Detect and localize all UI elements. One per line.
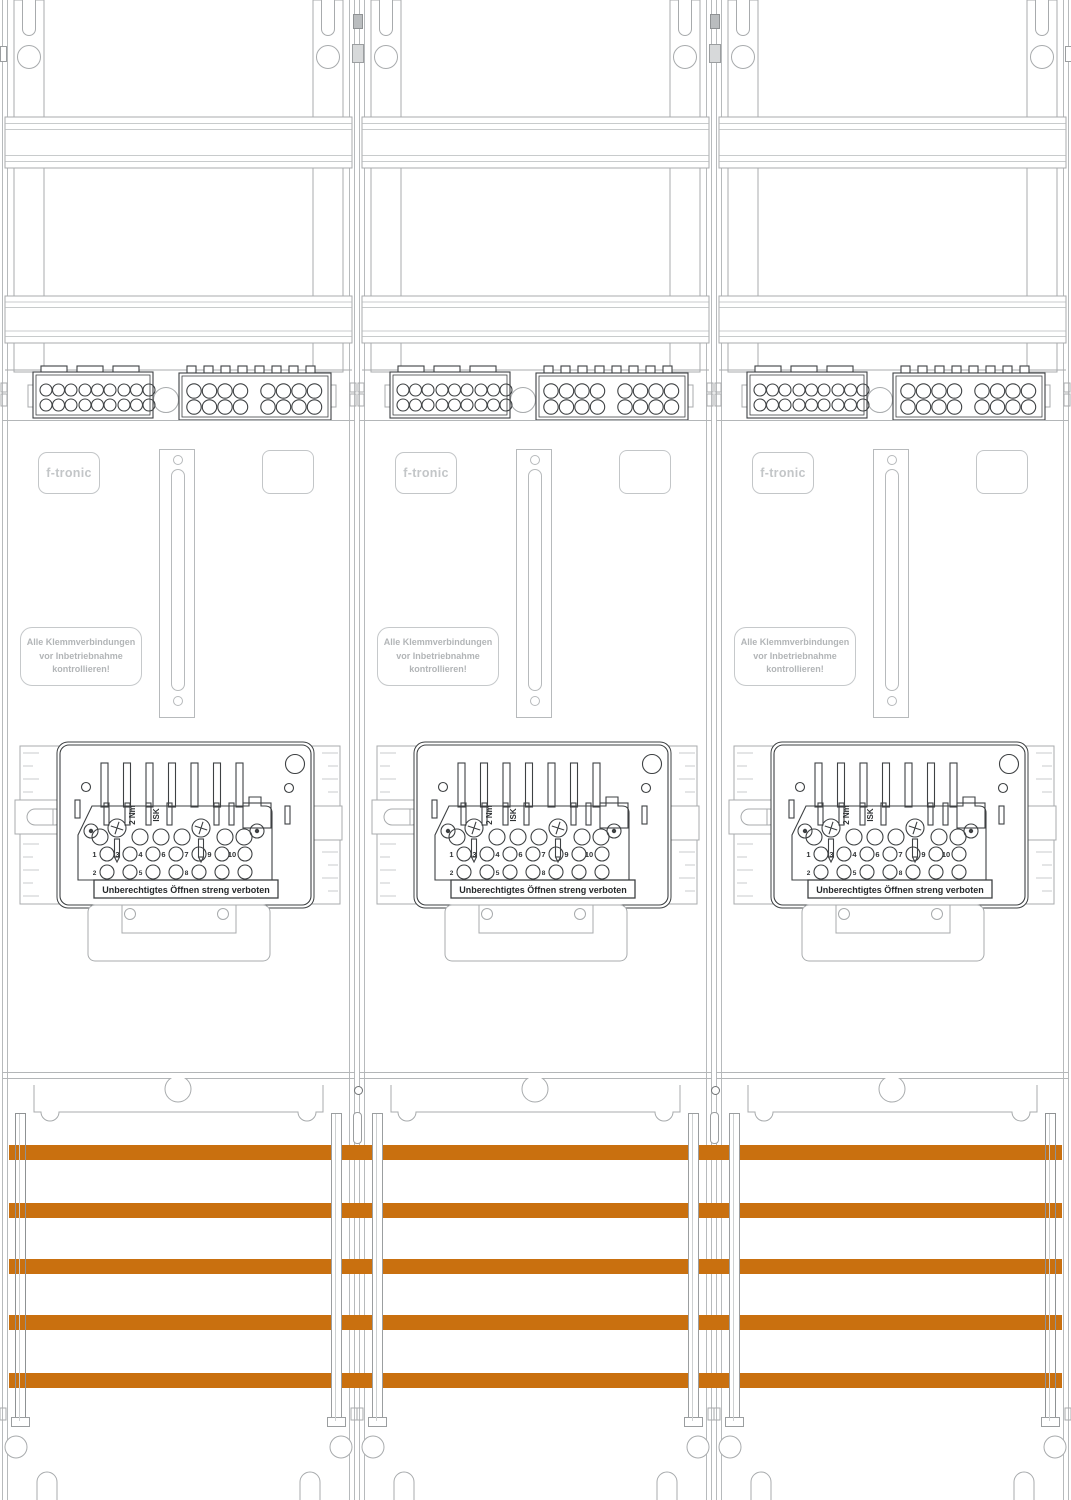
bottom-center-hole-icon: [522, 1078, 548, 1102]
slot-bar: [528, 469, 542, 691]
svg-text:9: 9: [564, 850, 568, 859]
divider-clip-icon: [352, 44, 364, 63]
svg-text:10: 10: [228, 850, 236, 859]
panel-body-top-line: [2, 420, 355, 421]
rail-foot: [725, 1417, 744, 1427]
adjustment-slot: [516, 449, 552, 718]
brand-text: f-tronic: [403, 466, 448, 480]
warning-label: Alle Klemmverbindungen vor Inbetriebnahm…: [377, 627, 499, 686]
svg-text:1: 1: [806, 850, 810, 859]
adjustment-slot: [873, 449, 909, 718]
isk-label: ISK: [866, 808, 875, 822]
hanger-slot-icon: [679, 0, 692, 36]
mounting-hole-icon: [674, 46, 697, 69]
divider-screw-icon: [354, 1086, 363, 1095]
top-mounting-section: [357, 0, 714, 420]
din-rail-lower: [362, 296, 709, 343]
foot-hole-icon: [1044, 1436, 1066, 1458]
slot-bar: [171, 469, 185, 691]
svg-text:7: 7: [184, 850, 188, 859]
edge-clip-icon: [0, 46, 7, 62]
blank-plate: [976, 450, 1028, 494]
svg-text:2: 2: [807, 870, 811, 877]
panel-body-top-line: [359, 420, 712, 421]
mounting-hole-icon: [317, 46, 340, 69]
isk-label: ISK: [509, 808, 518, 822]
busbar-section: [0, 1078, 357, 1500]
din-rail-upper: [362, 117, 709, 168]
divider-slot-icon: [710, 1112, 719, 1144]
svg-text:2: 2: [93, 870, 97, 877]
brand-text: f-tronic: [760, 466, 805, 480]
warning-line: Alle Klemmverbindungen: [21, 636, 141, 650]
busbar-support-rail: [729, 1113, 740, 1422]
device-body: [414, 742, 671, 908]
busbar-support-rail: [1045, 1113, 1056, 1422]
divider-clip-icon: [353, 14, 363, 29]
center-screw-hole-icon: [868, 388, 893, 413]
warning-line: vor Inbetriebnahme: [735, 650, 855, 664]
svg-text:3: 3: [472, 850, 476, 859]
foot-hole-icon: [362, 1436, 384, 1458]
rail-foot: [684, 1417, 703, 1427]
warning-banner-text: Unberechtigtes Öffnen streng verboten: [816, 885, 984, 895]
meter-cabinet-drawing: f-tronic Alle Klemmverbindungen vor Inbe…: [0, 0, 1071, 1500]
warning-banner-text: Unberechtigtes Öffnen streng verboten: [102, 885, 270, 895]
busbar: [9, 1373, 1062, 1388]
isk-label: ISK: [152, 808, 161, 822]
isk-terminal-device: 1 2 3 7 8 9: [714, 733, 1071, 965]
meter-panel: f-tronic Alle Klemmverbindungen vor Inbe…: [357, 0, 714, 1500]
slot-hole-icon: [530, 455, 540, 465]
svg-text:1: 1: [92, 850, 96, 859]
device-body: [57, 742, 314, 908]
adjustment-slot: [159, 449, 195, 718]
warning-banner-text: Unberechtigtes Öffnen streng verboten: [459, 885, 627, 895]
busbar-section: [714, 1078, 1071, 1500]
warning-line: Alle Klemmverbindungen: [378, 636, 498, 650]
center-screw-hole-icon: [511, 388, 536, 413]
foot-notch: [37, 1472, 57, 1500]
busbar: [9, 1145, 1062, 1160]
foot-hole-icon: [687, 1436, 709, 1458]
din-rail-lower: [719, 296, 1066, 343]
terminal-block-left: [747, 366, 869, 418]
warning-line: Alle Klemmverbindungen: [735, 636, 855, 650]
device-body: [771, 742, 1028, 908]
busbar-support-rail: [372, 1113, 383, 1422]
rail-foot: [327, 1417, 346, 1427]
svg-text:8: 8: [185, 870, 189, 877]
warning-line: kontrollieren!: [735, 663, 855, 677]
divider-slot-icon: [353, 1112, 362, 1144]
divider-clip-icon: [710, 14, 720, 29]
foot-notch: [1014, 1472, 1034, 1500]
torque-label: 2 Nm: [842, 805, 851, 825]
hanger-slot-icon: [1036, 0, 1049, 36]
mounting-hole-icon: [732, 46, 755, 69]
svg-text:7: 7: [898, 850, 902, 859]
busbar: [9, 1203, 1062, 1218]
mounting-hole-icon: [375, 46, 398, 69]
svg-text:10: 10: [942, 850, 950, 859]
warning-label: Alle Klemmverbindungen vor Inbetriebnahm…: [734, 627, 856, 686]
brand-label: f-tronic: [395, 452, 457, 494]
meter-panel: f-tronic Alle Klemmverbindungen vor Inbe…: [0, 0, 357, 1500]
isk-terminal-device: 1 2 3 7 8 9: [0, 733, 357, 965]
slot-hole-icon: [173, 696, 183, 706]
torque-label: 2 Nm: [128, 805, 137, 825]
center-screw-hole-icon: [154, 388, 179, 413]
svg-text:1: 1: [449, 850, 453, 859]
brand-text: f-tronic: [46, 466, 91, 480]
warning-label: Alle Klemmverbindungen vor Inbetriebnahm…: [20, 627, 142, 686]
warning-line: kontrollieren!: [21, 663, 141, 677]
svg-text:5: 5: [853, 870, 857, 877]
busbar-support-rail: [15, 1113, 26, 1422]
slot-hole-icon: [530, 696, 540, 706]
warning-line: vor Inbetriebnahme: [378, 650, 498, 664]
hanger-slot-icon: [737, 0, 750, 36]
din-rail-lower: [5, 296, 352, 343]
svg-text:10: 10: [585, 850, 593, 859]
svg-text:3: 3: [829, 850, 833, 859]
foot-notch: [300, 1472, 320, 1500]
rail-foot: [11, 1417, 30, 1427]
blank-plate: [262, 450, 314, 494]
svg-text:2: 2: [450, 870, 454, 877]
rail-foot: [368, 1417, 387, 1427]
edge-clip-icon: [1065, 46, 1071, 62]
foot-notch: [751, 1472, 771, 1500]
svg-text:6: 6: [518, 850, 522, 859]
foot-hole-icon: [330, 1436, 352, 1458]
mounting-hole-icon: [1031, 46, 1054, 69]
bottom-center-hole-icon: [165, 1078, 191, 1102]
device-bottom-tabs: [802, 905, 984, 961]
svg-text:7: 7: [541, 850, 545, 859]
terminal-block-right: [536, 366, 688, 420]
meter-panel: f-tronic Alle Klemmverbindungen vor Inbe…: [714, 0, 1071, 1500]
divider-screw-icon: [711, 1086, 720, 1095]
svg-text:6: 6: [875, 850, 879, 859]
slot-bar: [885, 469, 899, 691]
busbar: [9, 1259, 1062, 1274]
svg-text:6: 6: [161, 850, 165, 859]
bottom-center-hole-icon: [879, 1078, 905, 1102]
hanger-slot-icon: [23, 0, 36, 36]
svg-text:5: 5: [496, 870, 500, 877]
device-bottom-tabs: [445, 905, 627, 961]
warning-line: vor Inbetriebnahme: [21, 650, 141, 664]
svg-text:9: 9: [207, 850, 211, 859]
rail-foot: [1041, 1417, 1060, 1427]
terminal-block-right: [179, 366, 331, 420]
torque-label: 2 Nm: [485, 805, 494, 825]
svg-text:8: 8: [899, 870, 903, 877]
device-bottom-tabs: [88, 905, 270, 961]
brand-label: f-tronic: [752, 452, 814, 494]
busbar: [9, 1315, 1062, 1330]
mounting-hole-icon: [18, 46, 41, 69]
svg-text:9: 9: [921, 850, 925, 859]
svg-text:5: 5: [139, 870, 143, 877]
slot-hole-icon: [173, 455, 183, 465]
din-rail-upper: [719, 117, 1066, 168]
divider-clip-icon: [709, 44, 721, 63]
busbar-support-rail: [688, 1113, 699, 1422]
slot-hole-icon: [887, 696, 897, 706]
svg-text:8: 8: [542, 870, 546, 877]
foot-notch: [394, 1472, 414, 1500]
terminal-block-right: [893, 366, 1045, 420]
brand-label: f-tronic: [38, 452, 100, 494]
terminal-block-left: [33, 366, 155, 418]
hanger-slot-icon: [380, 0, 393, 36]
slot-hole-icon: [887, 455, 897, 465]
panel-body-top-line: [716, 420, 1069, 421]
foot-hole-icon: [719, 1436, 741, 1458]
isk-terminal-device: 1 2 3 7 8 9: [357, 733, 714, 965]
warning-line: kontrollieren!: [378, 663, 498, 677]
foot-hole-icon: [5, 1436, 27, 1458]
top-mounting-section: [714, 0, 1071, 420]
busbar-section: [357, 1078, 714, 1500]
hanger-slot-icon: [322, 0, 335, 36]
foot-notch: [657, 1472, 677, 1500]
svg-text:3: 3: [115, 850, 119, 859]
din-rail-upper: [5, 117, 352, 168]
busbar-support-rail: [331, 1113, 342, 1422]
terminal-block-left: [390, 366, 512, 418]
blank-plate: [619, 450, 671, 494]
top-mounting-section: [0, 0, 357, 420]
